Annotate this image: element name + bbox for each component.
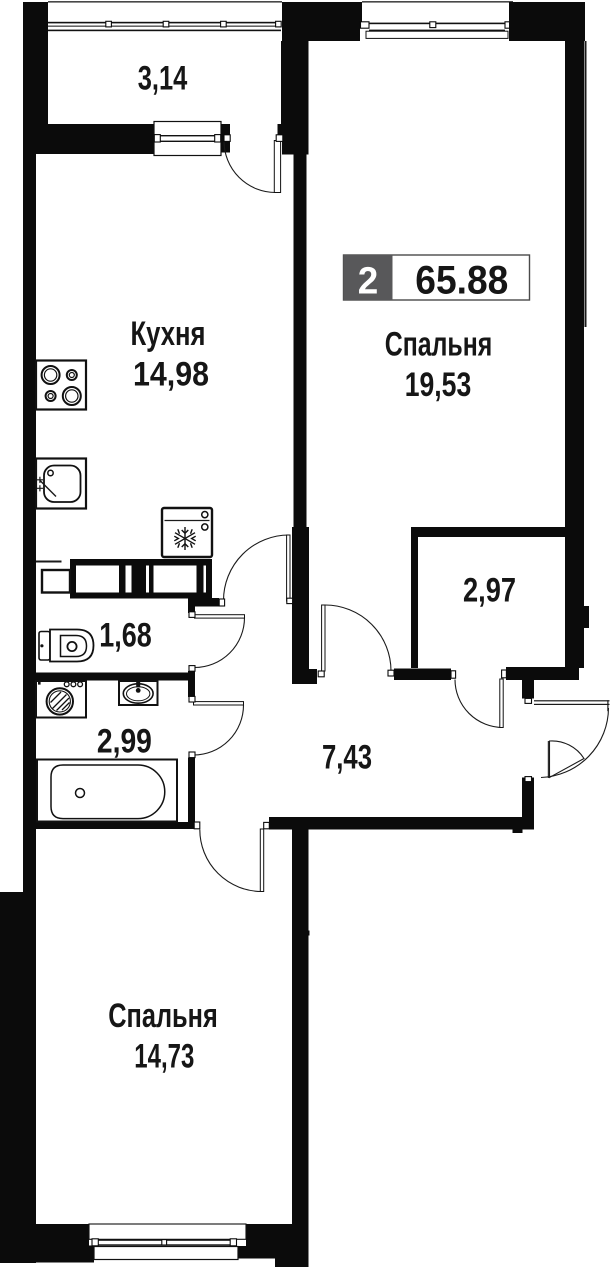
svg-text:7,43: 7,43 [322,739,372,777]
svg-text:Спальня: Спальня [385,325,493,363]
svg-text:65.88: 65.88 [415,259,508,303]
svg-text:14,98: 14,98 [133,356,209,394]
svg-text:14,73: 14,73 [134,1037,194,1075]
svg-text:1,68: 1,68 [99,617,152,655]
svg-text:2,99: 2,99 [97,723,152,761]
svg-text:19,53: 19,53 [405,366,472,404]
svg-text:Спальня: Спальня [108,997,218,1035]
svg-text:3,14: 3,14 [138,59,188,97]
svg-text:2: 2 [358,261,379,303]
svg-text:Кухня: Кухня [131,315,206,353]
svg-text:2,97: 2,97 [463,572,516,610]
